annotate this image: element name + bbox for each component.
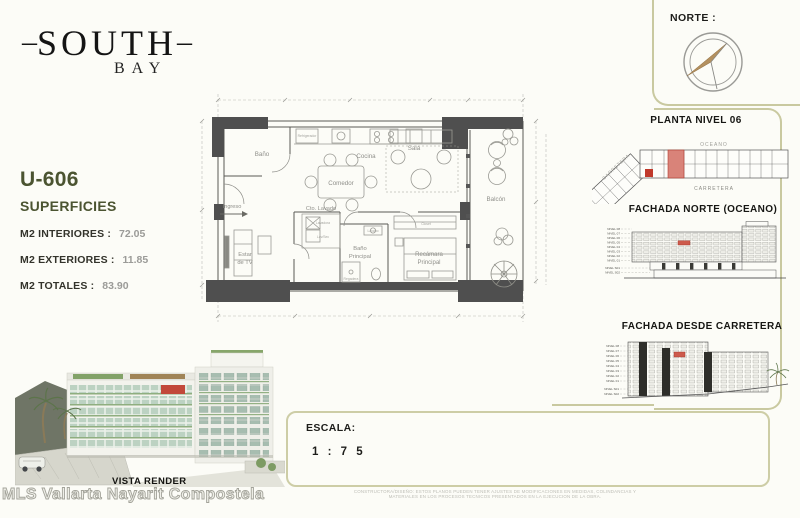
metric-label: M2 INTERIORES : <box>20 228 111 240</box>
watermark-text: MLS Vallarta Nayarit Compostela <box>2 486 264 504</box>
fachada-carretera-elevation: NIVEL 08 NIVEL 07 NIVEL 06 NIVEL 05 NIVE… <box>592 334 790 408</box>
room-label-sala: Sala <box>408 145 421 152</box>
level-label: NIVEL 06 <box>607 236 620 240</box>
room-label-estar-1: Estar <box>238 252 252 258</box>
room-label-banop-1: Baño <box>353 246 367 252</box>
level-label: NIVEL 03 <box>607 250 620 254</box>
shrub <box>268 463 276 471</box>
metric-value: 11.85 <box>123 254 149 266</box>
keyplan-unit-highlight <box>668 150 684 178</box>
escala-label: ESCALA: <box>306 422 355 434</box>
room-label-bano: Baño <box>255 151 270 158</box>
room-label-banop-2: Principal <box>349 254 371 260</box>
level-label: NIVEL 02 <box>607 254 620 258</box>
fachada-carretera-levels: NIVEL 08 NIVEL 07 NIVEL 06 NIVEL 05 NIVE… <box>604 344 619 396</box>
building-render <box>15 343 285 488</box>
disclaimer-line-2: MATERIALES EN LOS PROCESOS TECNICOS PRES… <box>330 494 660 499</box>
planta-keyplan: OCEANO CARRETERA CARRETERA <box>592 122 792 204</box>
plan-sheet: –SOUTH– BAY U-606 SUPERFICIES M2 INTERIO… <box>0 0 800 518</box>
level-label: NIVEL S02 <box>605 271 620 275</box>
room-label-comedor: Comedor <box>328 180 353 187</box>
level-label: NIVEL 02 <box>606 374 619 378</box>
sublevel <box>654 270 776 278</box>
metric-value: 83.90 <box>102 280 128 292</box>
level-label: NIVEL 01 <box>607 259 620 263</box>
room-label-ingreso: Ingreso <box>223 204 242 210</box>
plan-walls <box>218 121 523 291</box>
level-label: NIVEL 07 <box>606 349 619 353</box>
fixture-label-regadera: Regadera <box>344 277 359 281</box>
escala-value: 1 : 7 5 <box>312 446 366 458</box>
north-box: NORTE : <box>652 0 800 106</box>
room-label-rec-1: Recámara <box>415 252 443 258</box>
logo-name: SOUTH <box>37 23 177 63</box>
logo-dash-right: – <box>177 25 192 58</box>
north-label: NORTE : <box>670 12 716 24</box>
level-label: NIVEL S01 <box>605 266 620 270</box>
fachada-norte-title: FACHADA NORTE (OCEANO) <box>618 204 788 215</box>
fixture-label-closet: Closet <box>421 222 431 226</box>
level-label: NIVEL 06 <box>606 354 619 358</box>
level-label: NIVEL 08 <box>607 227 620 231</box>
metric-row: M2 TOTALES : 83.90 <box>20 280 148 292</box>
brand-wordmark: –SOUTH– <box>22 22 192 64</box>
room-label-rec-2: Principal <box>417 260 440 266</box>
room-label-balcon: Balcón <box>487 196 506 203</box>
unit-highlight <box>678 241 690 245</box>
keyplan-mainbar <box>640 150 788 178</box>
right-wing-windows <box>199 373 269 457</box>
brand-logo: –SOUTH– BAY <box>22 22 192 78</box>
roof-garden <box>73 374 123 379</box>
superficies-title: SUPERFICIES <box>20 198 148 214</box>
metric-row: M2 EXTERIORES : 11.85 <box>20 254 148 266</box>
dark-bar <box>704 352 712 392</box>
metric-label: M2 TOTALES : <box>20 280 94 292</box>
roof-pergola <box>130 374 185 379</box>
room-label-cto-lavado: Cto. Lavado <box>306 206 336 212</box>
room-label-estar-2: de TV <box>237 260 252 266</box>
fixture-label-lav-sec: Lav/Sec <box>317 235 330 239</box>
base-shadow <box>67 455 273 458</box>
palm-sketch <box>767 363 789 385</box>
metric-label: M2 EXTERIORES : <box>20 254 115 266</box>
level-label: NIVEL 04 <box>607 245 620 249</box>
fixture-label-lavabo: Lavabo <box>367 229 378 233</box>
structural-columns <box>206 117 523 302</box>
level-label: NIVEL S02 <box>604 392 619 396</box>
unit-id: U-606 <box>20 168 148 192</box>
level-label: NIVEL 08 <box>606 344 619 348</box>
room-label-cocina: Cocina <box>356 153 376 160</box>
unit-info: U-606 SUPERFICIES M2 INTERIORES : 72.05 … <box>20 168 148 292</box>
level-label: NIVEL 03 <box>606 369 619 373</box>
level-leaders <box>620 346 628 394</box>
dark-bar <box>639 342 647 396</box>
right-block <box>708 352 768 392</box>
level-label: NIVEL 05 <box>606 359 619 363</box>
fachada-norte-levels: NIVEL 08 NIVEL 07 NIVEL 06 NIVEL 05 NIVE… <box>605 227 620 275</box>
fixture-label-lavadora: Lavadora <box>316 221 330 225</box>
penthouse <box>746 222 768 227</box>
render-unit-highlight <box>161 385 185 394</box>
compass-icon <box>680 29 746 95</box>
level-label: NIVEL S01 <box>604 387 619 391</box>
metric-value: 72.05 <box>119 228 145 240</box>
logo-dash-left: – <box>22 25 37 58</box>
rooftop-box <box>211 353 263 367</box>
dark-bar <box>662 348 670 396</box>
fachada-norte-elevation: NIVEL 08 NIVEL 07 NIVEL 06 NIVEL 05 NIVE… <box>594 220 790 288</box>
metric-row: M2 INTERIORES : 72.05 <box>20 228 148 240</box>
keyplan-core-highlight <box>645 169 653 177</box>
shrub <box>256 458 266 468</box>
keyplan-carretera-label: CARRETERA <box>694 186 734 192</box>
main-slab <box>632 232 742 262</box>
level-label: NIVEL 05 <box>607 241 620 245</box>
level-label: NIVEL 04 <box>606 364 619 368</box>
disclaimer-text: CONSTRUCTORA/DISEÑO: ESTOS PLANOS PUEDEN… <box>330 489 660 500</box>
escala-panel: ESCALA: 1 : 7 5 <box>286 411 770 487</box>
floorplan-drawing: Baño Cocina Comedor Sala Balcón Ingreso … <box>190 84 558 332</box>
fachada-carretera-title: FACHADA DESDE CARRETERA <box>612 321 792 332</box>
right-tower <box>742 226 776 262</box>
level-label: NIVEL 01 <box>606 379 619 383</box>
keyplan-oceano-label: OCEANO <box>700 142 728 148</box>
unit-highlight <box>674 352 685 357</box>
fixture-label-refrigerador: Refrigerador <box>298 134 318 138</box>
level-label: NIVEL 07 <box>607 232 620 236</box>
